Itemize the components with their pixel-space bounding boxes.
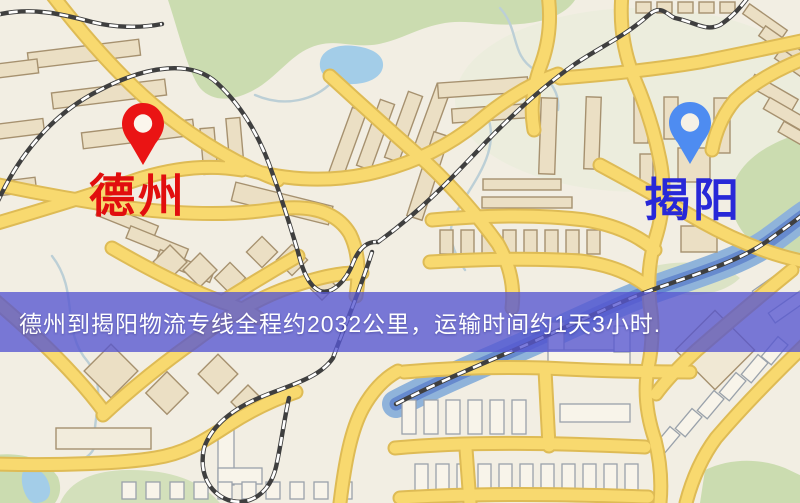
origin-pin-icon[interactable] bbox=[122, 103, 164, 165]
map-canvas: 德州 揭阳 德州到揭阳物流专线全程约2032公里，运输时间约1天3小时. bbox=[0, 0, 800, 503]
map-background bbox=[0, 0, 800, 503]
route-info-banner: 德州到揭阳物流专线全程约2032公里，运输时间约1天3小时. bbox=[0, 292, 800, 352]
route-info-text: 德州到揭阳物流专线全程约2032公里，运输时间约1天3小时. bbox=[19, 305, 661, 339]
